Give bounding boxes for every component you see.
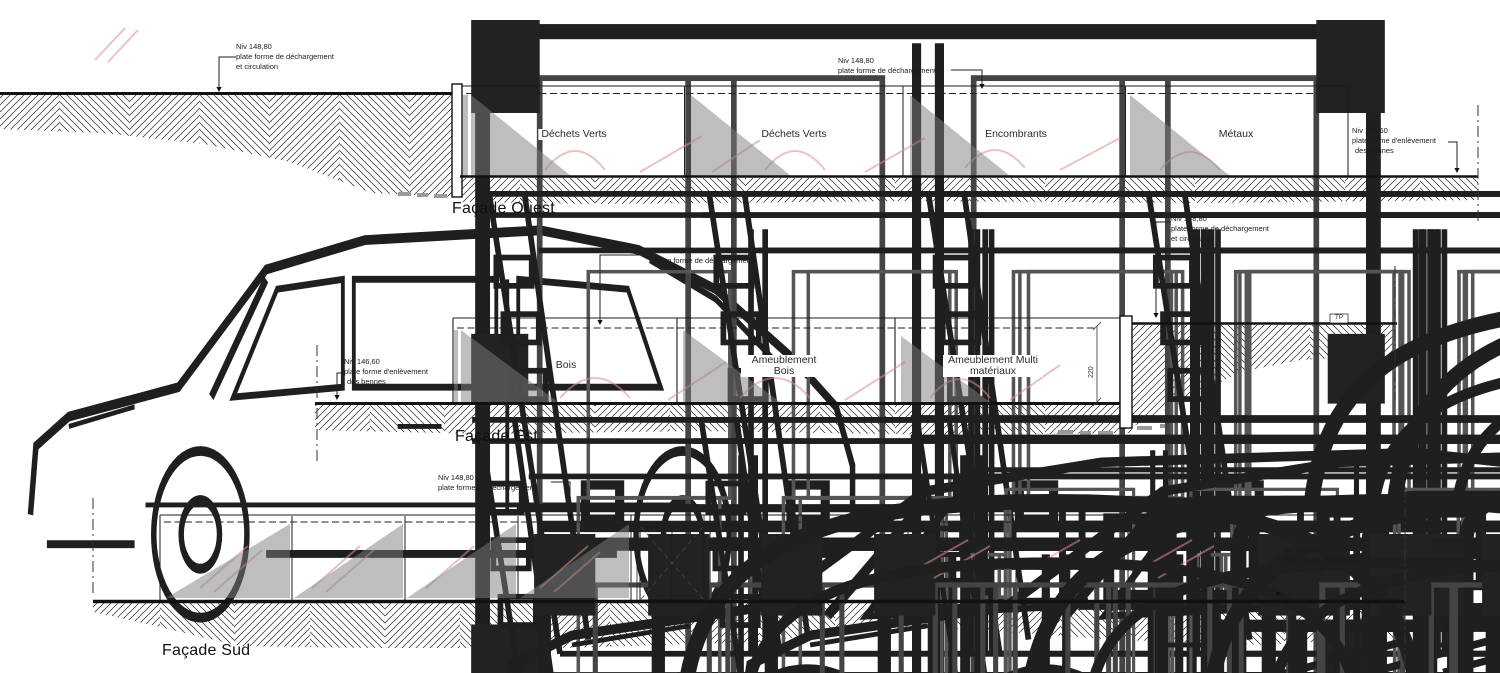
elevation-drawing-sheet: Façade Ouest Façade Est Façade Sud Déche… <box>0 0 1500 673</box>
dimension-220-label: 220 <box>1088 366 1095 378</box>
annotation-ouest-top: Niv 148,80 plate forme de déchargement <box>838 56 936 76</box>
label-benne-ameublement-bois: Ameublement Bois <box>741 355 827 377</box>
retaining-wall-est <box>1120 316 1132 428</box>
annotation-ouest-left: Niv 148,80 plate forme de déchargement e… <box>236 42 334 72</box>
title-facade-ouest: Façade Ouest <box>452 200 555 218</box>
tp-label: TP <box>1330 314 1348 322</box>
label-benne-metaux: Métaux <box>1216 129 1256 140</box>
annotation-sud-right: Niv 146,60 plate forme d'enlèvement des … <box>1283 545 1367 575</box>
retaining-wall-ouest <box>452 84 462 197</box>
annotation-ouest-right: Niv 146,60 plate forme d'enlèvement des … <box>1352 126 1436 156</box>
title-facade-est: Façade Est <box>455 428 538 446</box>
label-benne-dechets-verts-2: Déchets Verts <box>758 129 829 140</box>
label-benne-bois: Bois <box>553 360 579 371</box>
drawing-canvas <box>0 0 1500 673</box>
ground-hatch-ouest-left <box>0 95 456 200</box>
label-benne-dechets-verts-1: Déchets Verts <box>538 129 609 140</box>
annotation-est-left: Niv 146,60 plate forme d'enlèvement des … <box>344 357 428 387</box>
title-facade-sud: Façade Sud <box>162 642 250 660</box>
label-benne-encombrants: Encombrants <box>982 129 1050 140</box>
annotation-est-right: Niv 148,80 plate forme de déchargement e… <box>1171 214 1269 244</box>
label-benne-ameublement-multi: Ameublement Multi matériaux <box>943 355 1043 377</box>
annotation-sud-top: Niv 148,80 plate forme de déchargement <box>438 473 536 493</box>
annotation-est-top: Niv 148,80 plate forme de déchargement <box>655 246 753 266</box>
height-dimension-220 <box>1093 322 1101 406</box>
